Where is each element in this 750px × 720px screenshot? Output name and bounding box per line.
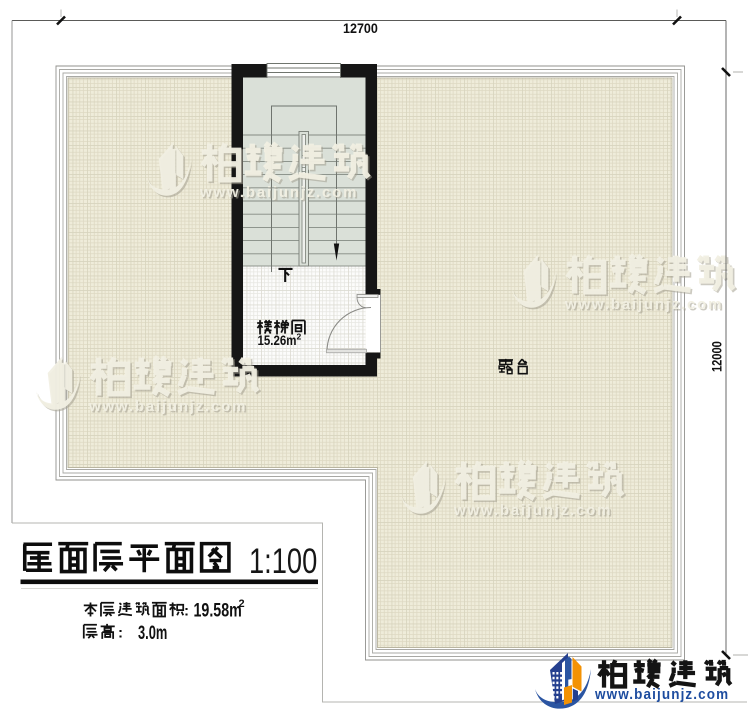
svg-text:15.26m: 15.26m — [258, 332, 297, 348]
svg-text::: : — [184, 603, 189, 620]
svg-text:2: 2 — [239, 598, 245, 610]
svg-text:2: 2 — [297, 332, 302, 342]
svg-text:1:100: 1:100 — [249, 542, 317, 581]
svg-text:www.baijunjz.com: www.baijunjz.com — [594, 685, 729, 702]
svg-text:3.0m: 3.0m — [138, 621, 167, 643]
svg-text:12700: 12700 — [343, 21, 378, 37]
svg-text::: : — [118, 625, 123, 642]
svg-text:12000: 12000 — [709, 341, 724, 372]
svg-text:19.58m: 19.58m — [194, 599, 242, 621]
